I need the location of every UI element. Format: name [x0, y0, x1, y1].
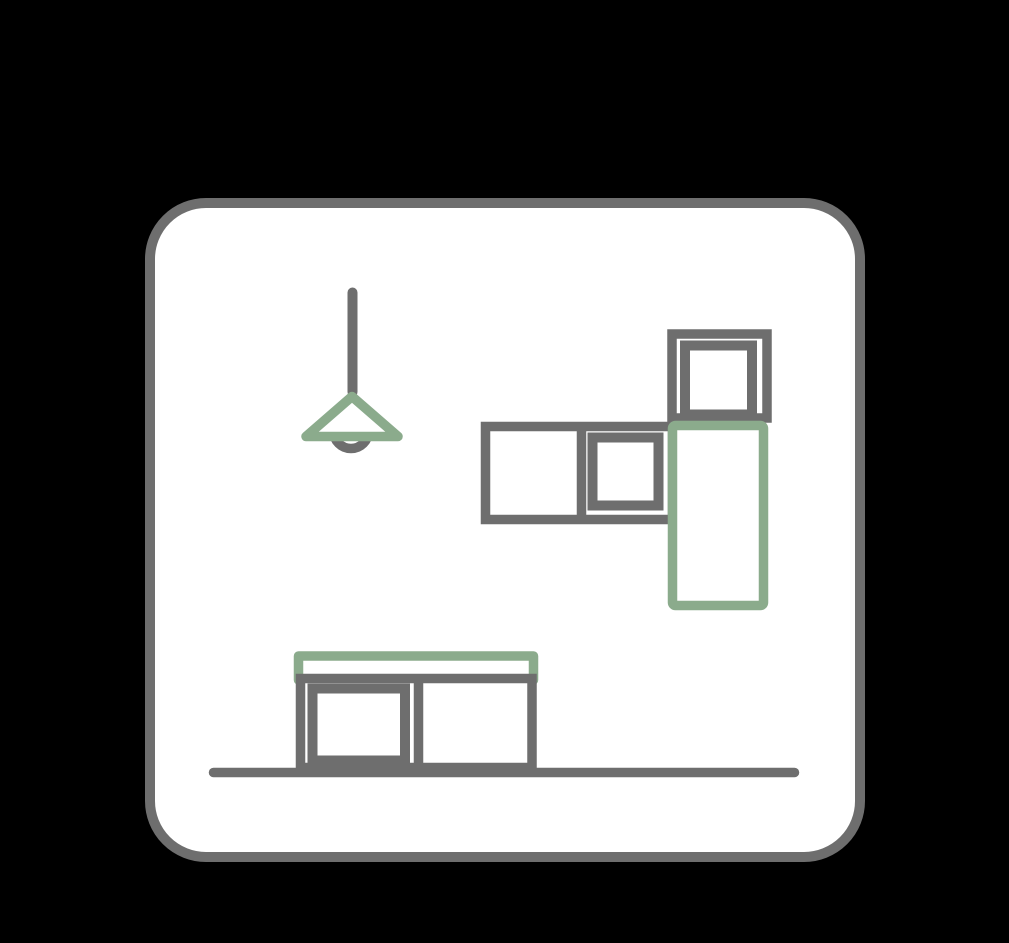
kitchen-line-art [0, 0, 1009, 943]
canvas-background: { "scene": { "name": "kitchen-furniture-… [0, 0, 1009, 943]
wall-cabinet-row [486, 427, 673, 520]
upper-cabinet [672, 334, 767, 418]
tall-cabinet [673, 426, 764, 606]
